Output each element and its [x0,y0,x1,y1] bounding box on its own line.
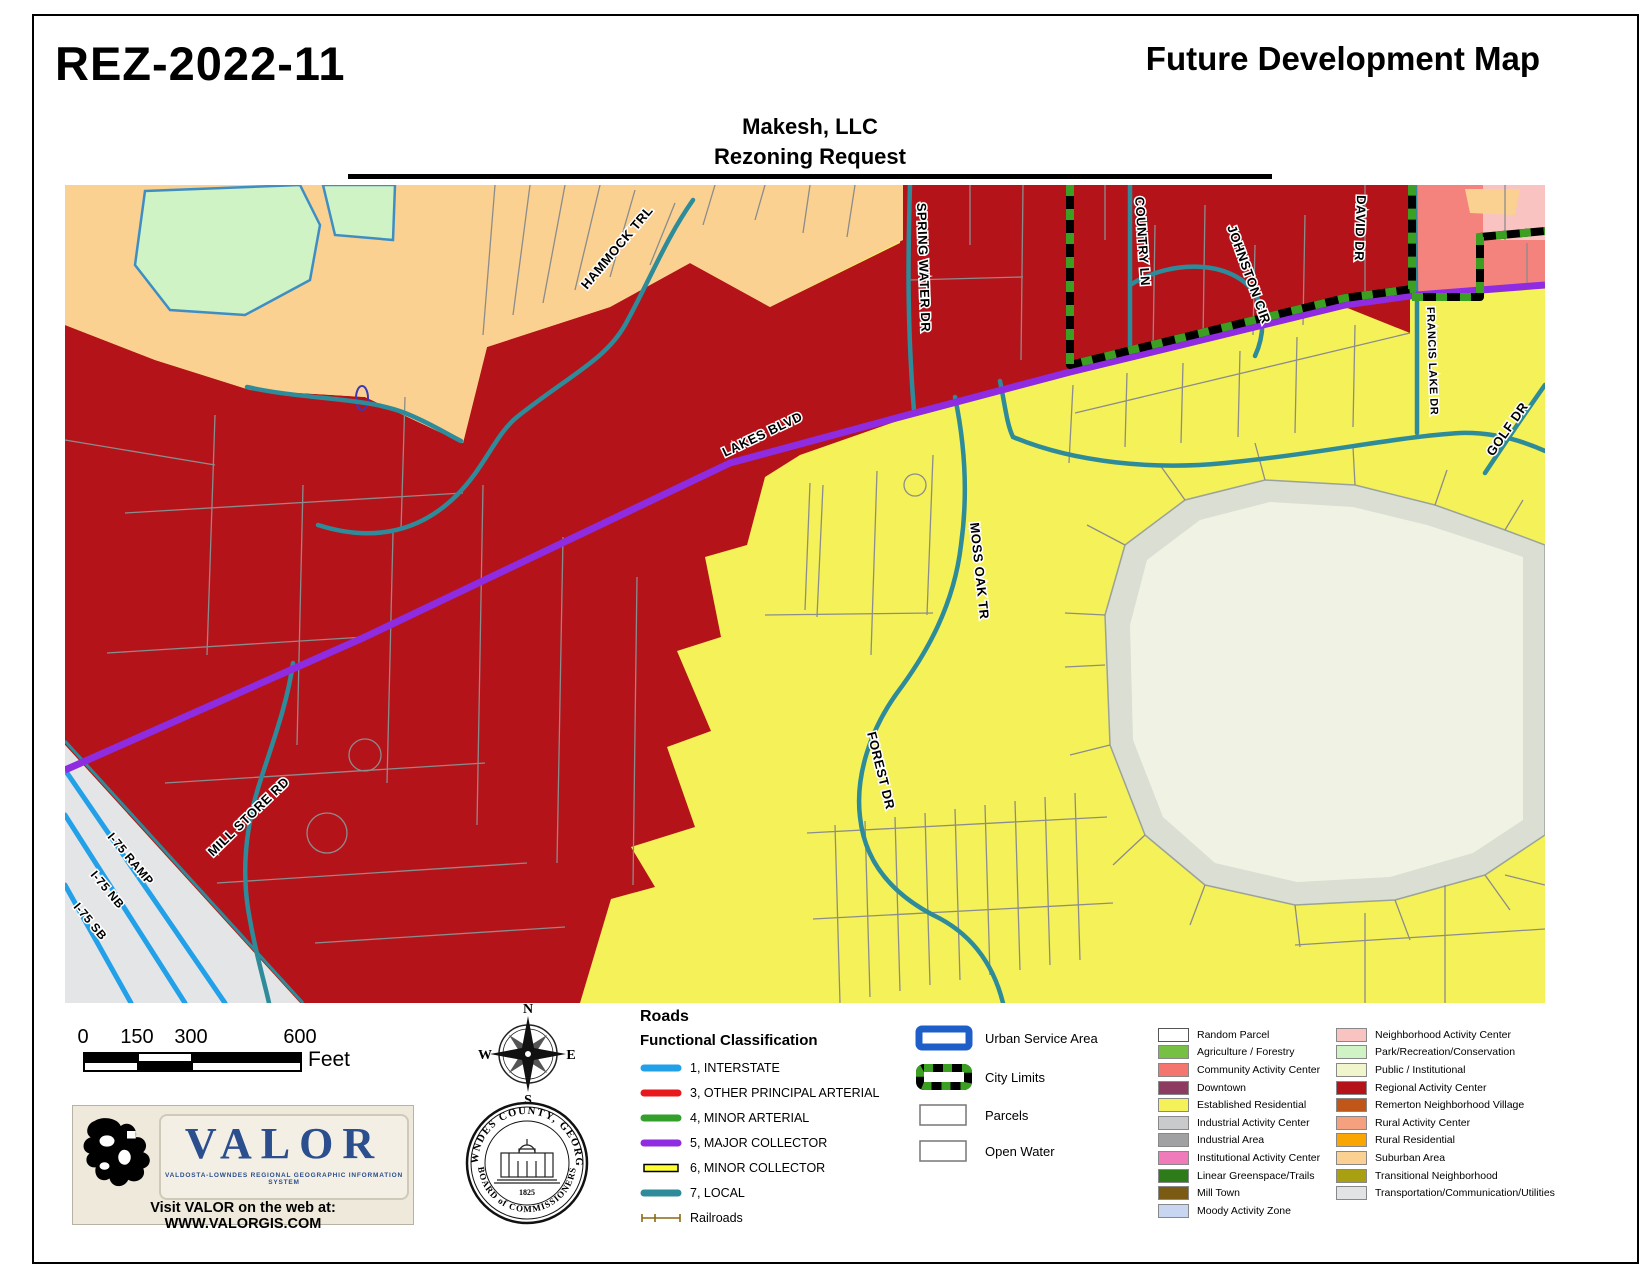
legend-parcels: Parcels [915,1103,1135,1127]
legend-road-major-collector: 5, MAJOR COLLECTOR [640,1134,900,1151]
scale-tick-300: 300 [174,1026,207,1049]
parcels-swatch [915,1103,973,1127]
landuse-legend-right: Neighborhood Activity Center Park/Recrea… [1336,1026,1636,1202]
road-line-swatch [640,1162,682,1174]
compass-n: N [523,1002,533,1017]
suburban-sliver [1465,189,1520,215]
legend-item: Public / Institutional [1336,1061,1636,1079]
color-swatch [1158,1098,1189,1112]
case-number-title: REZ-2022-11 [55,36,346,91]
map-title: Future Development Map [900,40,1540,78]
railroad-swatch [640,1211,682,1225]
park-area-2 [323,185,395,240]
valor-inner-panel: VALOR VALDOSTA-LOWNDES REGIONAL GEOGRAPH… [159,1114,409,1200]
legend-urban-service-area: Urban Service Area [915,1025,1135,1051]
color-swatch [1158,1204,1189,1218]
legend-road-principal-arterial: 3, OTHER PRINCIPAL ARTERIAL [640,1084,900,1101]
valor-tagline: VALDOSTA-LOWNDES REGIONAL GEOGRAPHIC INF… [161,1172,407,1186]
county-seal: LOWNDES COUNTY, GEORGIA BOARD of COMMISS… [462,1098,592,1228]
color-swatch [1158,1081,1189,1095]
legend-road-local: 7, LOCAL [640,1184,900,1201]
legend-city-limits: City Limits [915,1063,1135,1091]
legend-item: Transportation/Communication/Utilities [1336,1184,1636,1202]
color-swatch [1336,1186,1367,1200]
legend-item: Transitional Neighborhood [1336,1167,1636,1185]
color-swatch [1158,1133,1189,1147]
legend-item: Suburban Area [1336,1149,1636,1167]
valor-wordmark: VALOR [161,1116,407,1172]
legend-item: Moody Activity Zone [1158,1202,1418,1220]
road-line-swatch [640,1112,682,1124]
legend-item: Remerton Neighborhood Village [1336,1096,1636,1114]
subtitle-rule [348,174,1272,179]
open-water-swatch [915,1139,973,1163]
city-limits-swatch [915,1063,973,1091]
legend-open-water: Open Water [915,1139,1135,1163]
legend-item: Park/Recreation/Conservation [1336,1044,1636,1062]
color-swatch [1158,1116,1189,1130]
color-swatch [1336,1151,1367,1165]
color-swatch [1336,1081,1367,1095]
road-line-swatch [640,1187,682,1199]
roads-legend: Roads Functional Classification 1, INTER… [640,1008,900,1234]
legend-road-minor-arterial: 4, MINOR ARTERIAL [640,1109,900,1126]
color-swatch [1336,1063,1367,1077]
legend-item: Neighborhood Activity Center [1336,1026,1636,1044]
scale-tick-600: 600 [283,1026,316,1049]
road-line-swatch [640,1087,682,1099]
color-swatch [1336,1169,1367,1183]
valor-logo-box: VALOR VALDOSTA-LOWNDES REGIONAL GEOGRAPH… [72,1105,414,1225]
compass-rose: N E S W [478,1002,578,1106]
color-swatch [1158,1028,1189,1042]
map-canvas: HAMMOCK TRL SPRING WATER DR COUNTRY LN J… [65,185,1545,1003]
roads-legend-title: Roads [640,1008,900,1026]
road-label-david-dr: DAVID DR [1352,195,1369,261]
legend-item: Rural Activity Center [1336,1114,1636,1132]
color-swatch [1336,1133,1367,1147]
color-swatch [1158,1151,1189,1165]
legend-road-railroads: Railroads [640,1209,900,1226]
color-swatch [1158,1186,1189,1200]
roads-legend-subtitle: Functional Classification [640,1032,900,1049]
subtitle: Makesh, LLC Rezoning Request [400,112,1220,172]
scale-tick-0: 0 [77,1026,88,1049]
scale-unit-label: Feet [308,1048,350,1072]
valor-county-shape-logo [79,1116,155,1196]
legend-item: Regional Activity Center [1336,1079,1636,1097]
urban-service-area-swatch [915,1025,973,1051]
compass-e: E [566,1048,575,1063]
color-swatch [1158,1045,1189,1059]
scale-bar-blocks [83,1052,302,1072]
legend-item: Rural Residential [1336,1132,1636,1150]
seal-year: 1825 [519,1188,535,1197]
compass-w: W [478,1048,492,1063]
legend-road-interstate: 1, INTERSTATE [640,1059,900,1076]
applicant-name: Makesh, LLC [400,112,1220,142]
color-swatch [1336,1028,1367,1042]
areas-legend: Urban Service Area City Limits Parcels O… [915,1025,1135,1175]
color-swatch [1336,1098,1367,1112]
legend-road-minor-collector: 6, MINOR COLLECTOR [640,1159,900,1176]
valor-web-line: Visit VALOR on the web at: WWW.VALORGIS.… [73,1200,413,1232]
request-type: Rezoning Request [400,142,1220,172]
color-swatch [1158,1063,1189,1077]
lake-area-inner [1130,502,1523,882]
color-swatch [1336,1045,1367,1059]
future-development-map-page: REZ-2022-11 Future Development Map Makes… [0,0,1651,1275]
road-line-swatch [640,1137,682,1149]
scale-tick-150: 150 [120,1026,153,1049]
road-line-swatch [640,1062,682,1074]
color-swatch [1158,1169,1189,1183]
color-swatch [1336,1116,1367,1130]
